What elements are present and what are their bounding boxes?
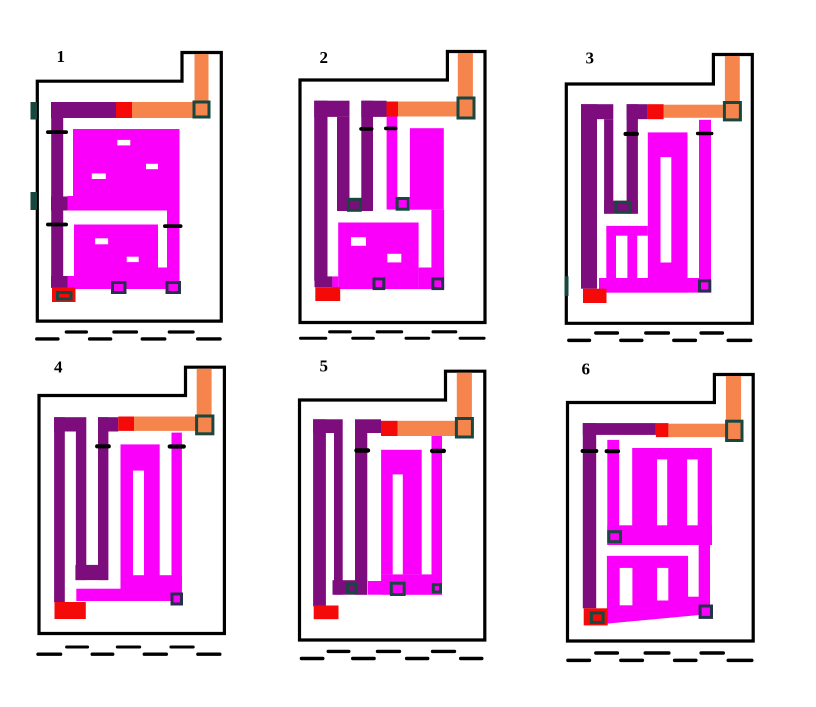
svg-text:4: 4 — [54, 358, 63, 377]
svg-text:2: 2 — [320, 48, 329, 67]
svg-text:5: 5 — [320, 357, 329, 376]
svg-text:1: 1 — [57, 47, 66, 66]
svg-text:3: 3 — [586, 49, 595, 68]
svg-text:6: 6 — [582, 360, 591, 379]
